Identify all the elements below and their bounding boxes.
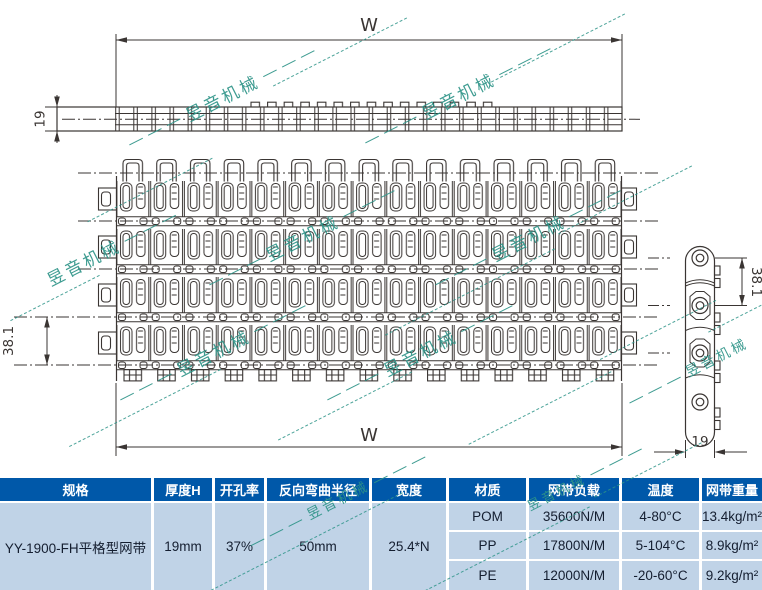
- side-view: [648, 247, 720, 447]
- product-spec-sheet: W 19 38.1 W 38.1 19 — — —昱音机械— — — — — —…: [0, 0, 762, 590]
- col-header-bend-radius: 反向弯曲半径: [267, 478, 369, 501]
- material-cell: PP: [449, 532, 526, 559]
- load-cell: 35600N/M: [529, 503, 619, 530]
- col-header-material: 材质: [449, 478, 526, 501]
- col-header-thickness: 厚度H: [154, 478, 212, 501]
- material-cell: POM: [449, 503, 526, 530]
- dim-label-pitch-side: 38.1: [748, 267, 762, 297]
- dim-label-side-width: 19: [691, 434, 708, 450]
- spec-cell: YY-1900-FH平格型网带: [0, 503, 151, 590]
- temp-cell: 4-80°C: [622, 503, 699, 530]
- col-header-temp: 温度: [622, 478, 699, 501]
- dim-label-width-top: W: [360, 15, 378, 36]
- dim-label-thickness: 19: [33, 110, 49, 127]
- load-cell: 17800N/M: [529, 532, 619, 559]
- col-header-weight: 网带重量: [702, 478, 762, 501]
- temp-cell: -20-60°C: [622, 561, 699, 590]
- col-header-load: 网带负载: [529, 478, 619, 501]
- material-cell: PE: [449, 561, 526, 590]
- weight-cell: 8.9kg/m²: [702, 532, 762, 559]
- thickness-cell: 19mm: [154, 503, 212, 590]
- bend-radius-cell: 50mm: [267, 503, 369, 590]
- plan-view: [14, 159, 658, 382]
- load-cell: 12000N/M: [529, 561, 619, 590]
- weight-cell: 9.2kg/m²: [702, 561, 762, 590]
- dim-label-width-bottom: W: [360, 425, 378, 446]
- top-view: [57, 102, 640, 132]
- dim-label-pitch-plan: 38.1: [1, 326, 17, 356]
- col-header-open-ratio: 开孔率: [215, 478, 264, 501]
- spec-table: 规格 厚度H 开孔率 反向弯曲半径 宽度 材质 网带负载 温度 网带重量 YY-…: [0, 478, 762, 590]
- technical-drawing-svg: W 19 38.1 W 38.1 19: [0, 0, 762, 478]
- col-header-width: 宽度: [372, 478, 446, 501]
- open-ratio-cell: 37%: [215, 503, 264, 590]
- weight-cell: 13.4kg/m²: [702, 503, 762, 530]
- width-cell: 25.4*N: [372, 503, 446, 590]
- temp-cell: 5-104°C: [622, 532, 699, 559]
- col-header-spec: 规格: [0, 478, 151, 501]
